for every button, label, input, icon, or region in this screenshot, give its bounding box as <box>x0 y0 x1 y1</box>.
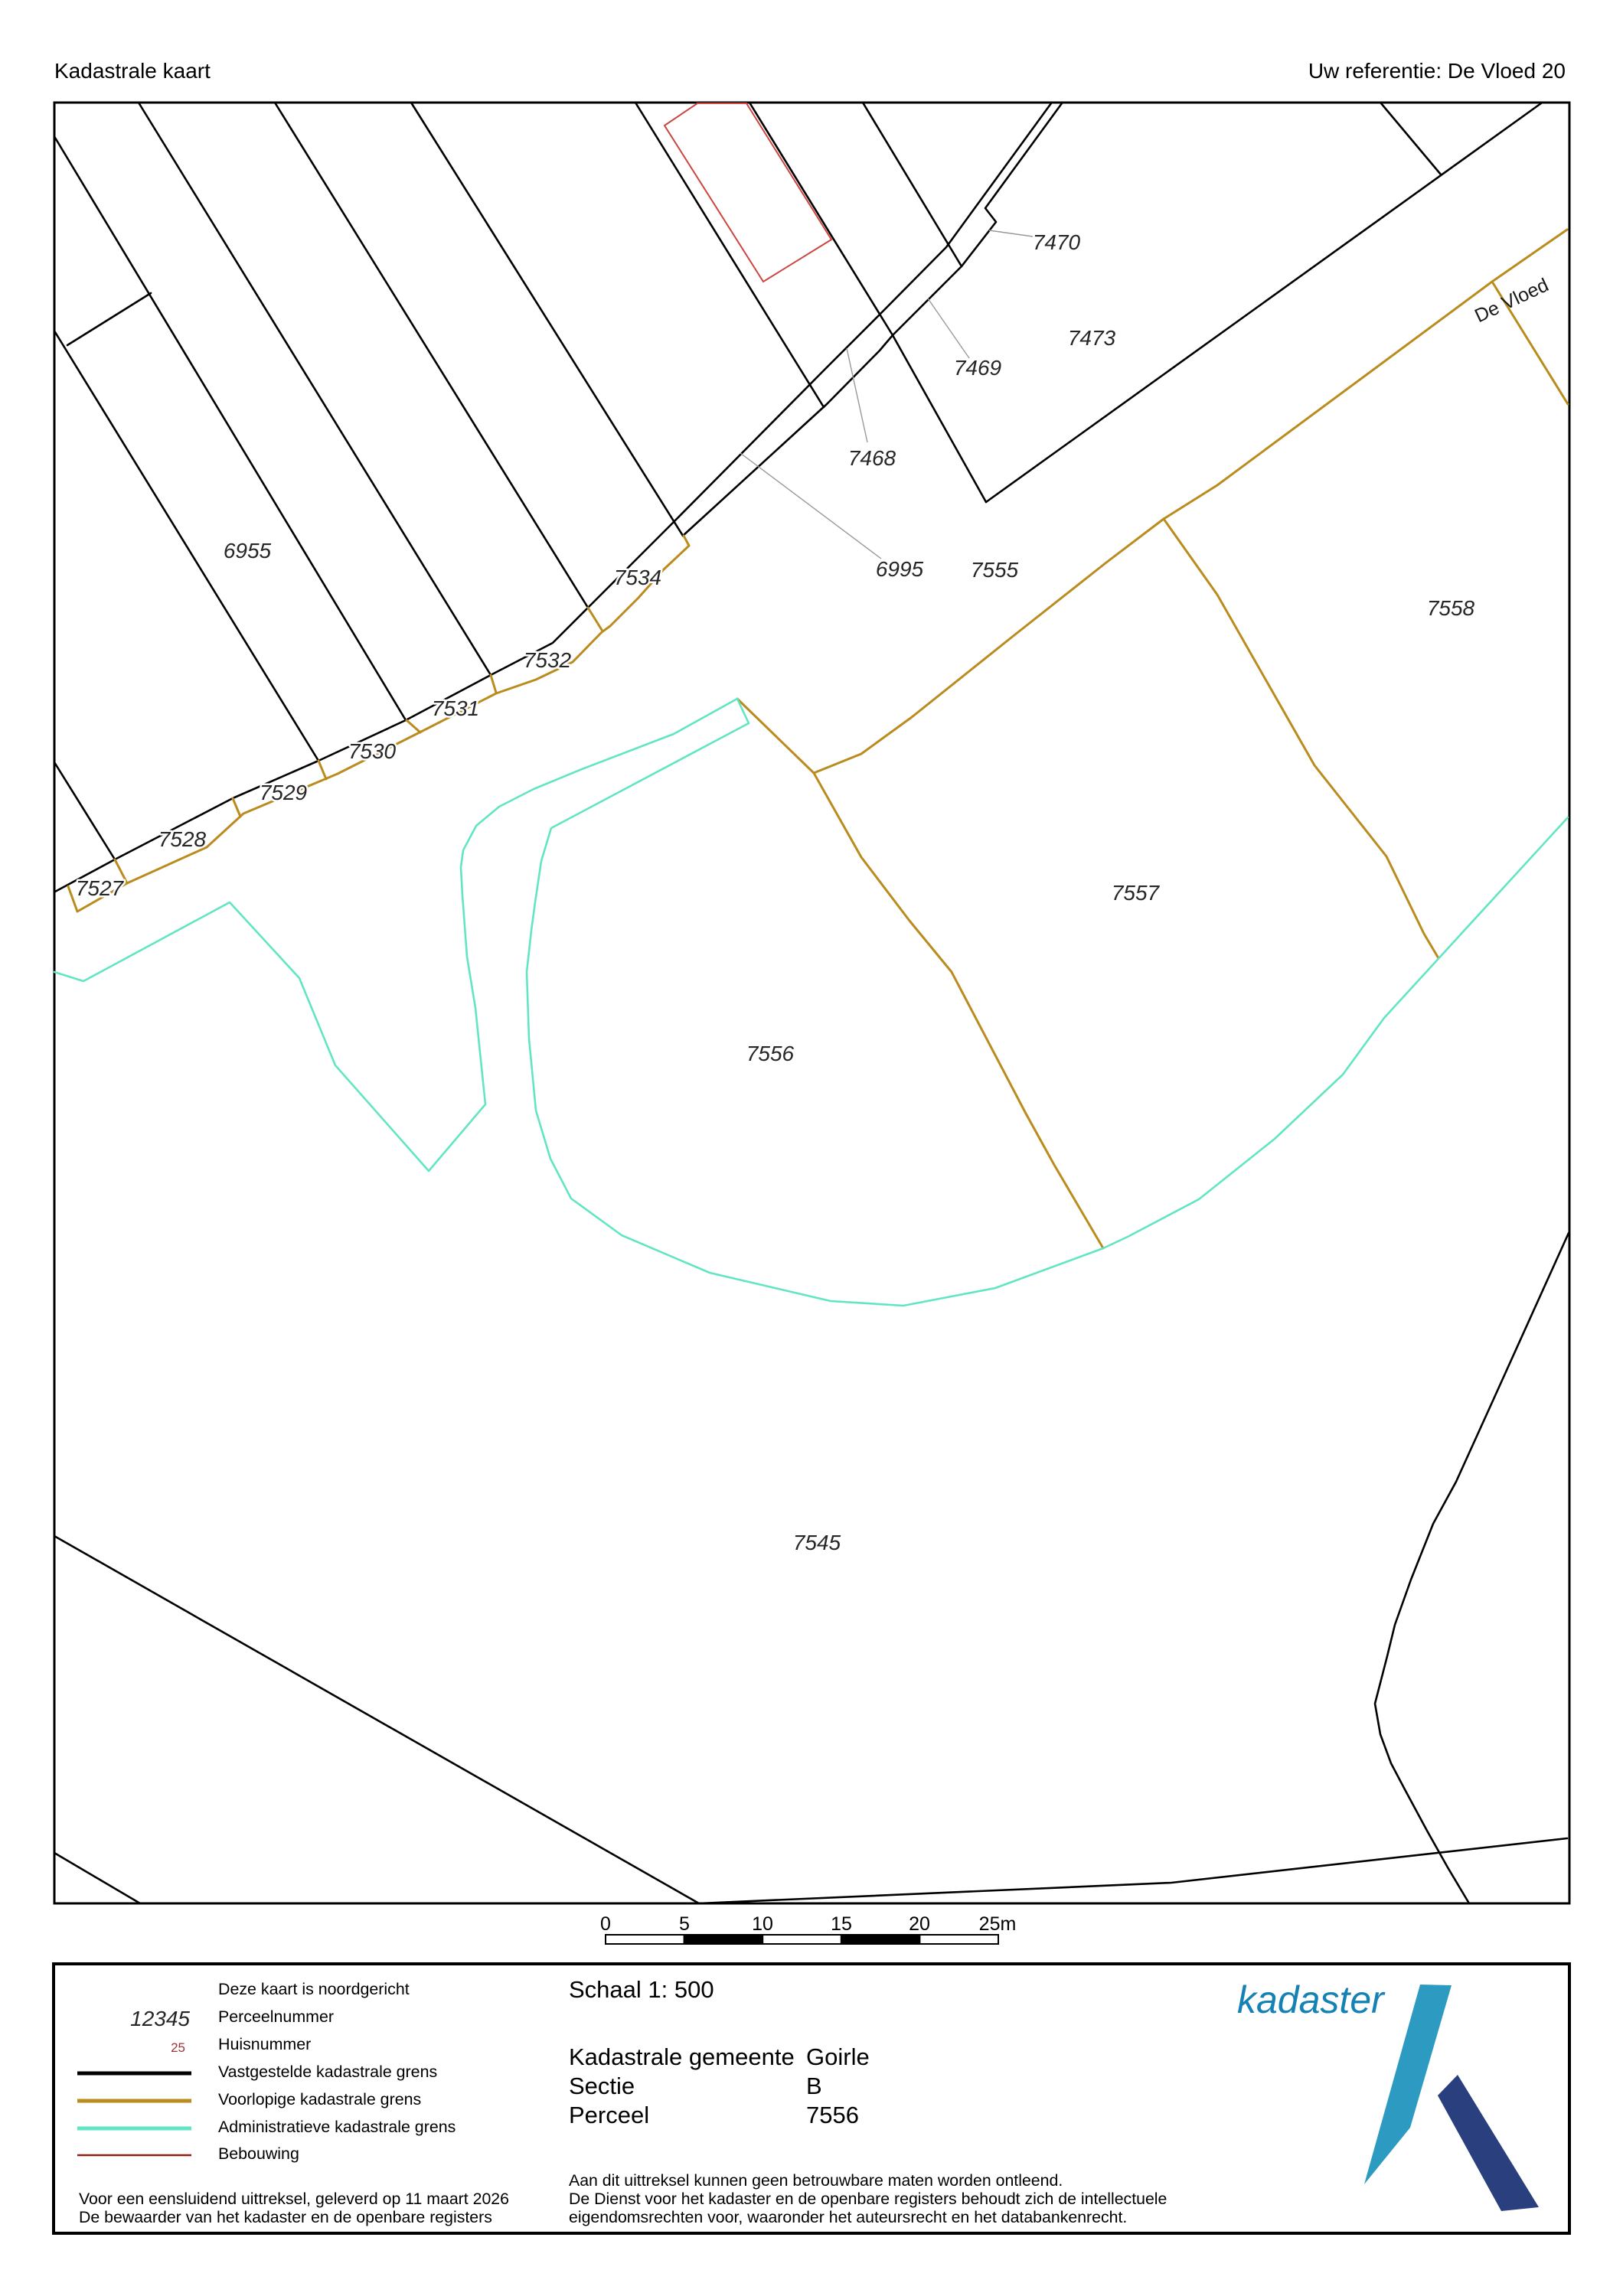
svg-text:7468: 7468 <box>848 446 896 470</box>
svg-text:7545: 7545 <box>793 1531 841 1554</box>
svg-text:7555: 7555 <box>971 558 1019 582</box>
svg-text:De bewaarder van het kadaster: De bewaarder van het kadaster en de open… <box>79 2208 492 2226</box>
svg-text:Perceelnummer: Perceelnummer <box>218 2007 334 2026</box>
svg-text:7530: 7530 <box>348 739 397 763</box>
svg-text:kadaster: kadaster <box>1237 1978 1386 2021</box>
svg-text:7534: 7534 <box>614 566 661 589</box>
svg-text:Sectie: Sectie <box>569 2073 635 2099</box>
svg-text:20: 20 <box>909 1913 930 1935</box>
svg-text:7558: 7558 <box>1427 596 1475 620</box>
svg-text:Huisnummer: Huisnummer <box>218 2035 311 2053</box>
svg-text:7556: 7556 <box>746 1042 795 1065</box>
svg-text:0: 0 <box>600 1913 611 1935</box>
svg-text:Deze kaart is noordgericht: Deze kaart is noordgericht <box>218 1980 410 1998</box>
svg-text:Uw referentie: De Vloed 20: Uw referentie: De Vloed 20 <box>1308 59 1566 83</box>
svg-text:7470: 7470 <box>1033 230 1081 254</box>
svg-text:Vastgestelde kadastrale grens: Vastgestelde kadastrale grens <box>218 2063 437 2081</box>
svg-text:De Dienst voor het kadaster en: De Dienst voor het kadaster en de openba… <box>569 2190 1167 2208</box>
svg-text:6995: 6995 <box>876 557 924 581</box>
svg-text:10: 10 <box>752 1913 773 1935</box>
svg-text:7528: 7528 <box>158 827 207 851</box>
svg-text:7527: 7527 <box>76 876 125 900</box>
svg-text:5: 5 <box>679 1913 690 1935</box>
svg-text:7531: 7531 <box>432 696 479 720</box>
svg-text:Aan dit uittreksel kunnen geen: Aan dit uittreksel kunnen geen betrouwba… <box>569 2171 1063 2190</box>
svg-text:Goirle: Goirle <box>806 2043 870 2070</box>
svg-text:7532: 7532 <box>524 648 572 672</box>
svg-text:25m: 25m <box>979 1913 1017 1935</box>
svg-text:eigendomsrechten voor, waarond: eigendomsrechten voor, waaronder het aut… <box>569 2208 1127 2226</box>
svg-text:7529: 7529 <box>260 781 307 804</box>
svg-text:B: B <box>806 2073 822 2099</box>
svg-text:15: 15 <box>831 1913 852 1935</box>
svg-text:Bebouwing: Bebouwing <box>218 2144 299 2163</box>
svg-text:Kadastrale kaart: Kadastrale kaart <box>54 59 211 83</box>
svg-text:Kadastrale gemeente: Kadastrale gemeente <box>569 2043 795 2070</box>
svg-text:7556: 7556 <box>806 2102 859 2128</box>
svg-text:Perceel: Perceel <box>569 2102 649 2128</box>
svg-text:Voor een eensluidend uittrekse: Voor een eensluidend uittreksel, gelever… <box>79 2190 509 2208</box>
svg-text:7557: 7557 <box>1112 881 1161 905</box>
svg-text:Schaal 1: 500: Schaal 1: 500 <box>569 1976 714 2003</box>
svg-text:Voorlopige kadastrale grens: Voorlopige kadastrale grens <box>218 2090 421 2108</box>
svg-text:7473: 7473 <box>1068 326 1116 350</box>
svg-text:12345: 12345 <box>130 2007 190 2030</box>
svg-text:Administratieve kadastrale gre: Administratieve kadastrale grens <box>218 2118 456 2136</box>
svg-text:De Vloed: De Vloed <box>1471 274 1552 327</box>
svg-text:25: 25 <box>171 2040 185 2055</box>
svg-text:6955: 6955 <box>224 539 272 563</box>
svg-text:7469: 7469 <box>954 356 1001 380</box>
